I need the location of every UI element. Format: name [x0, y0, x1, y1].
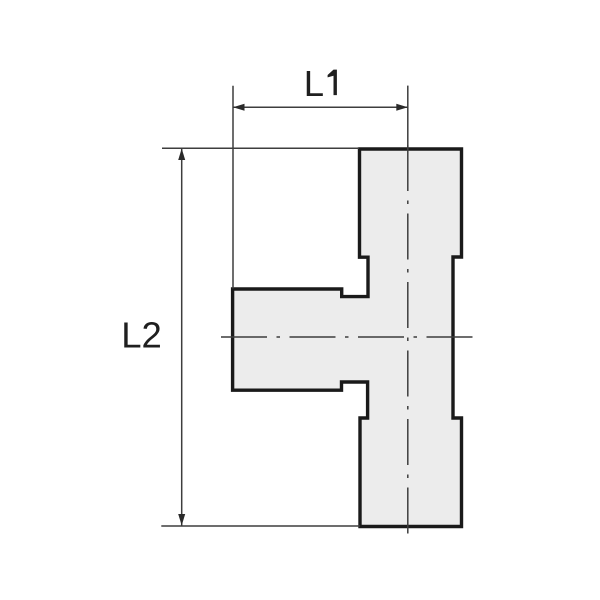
svg-text:L: L: [304, 63, 324, 104]
svg-text:L2: L2: [121, 315, 162, 356]
